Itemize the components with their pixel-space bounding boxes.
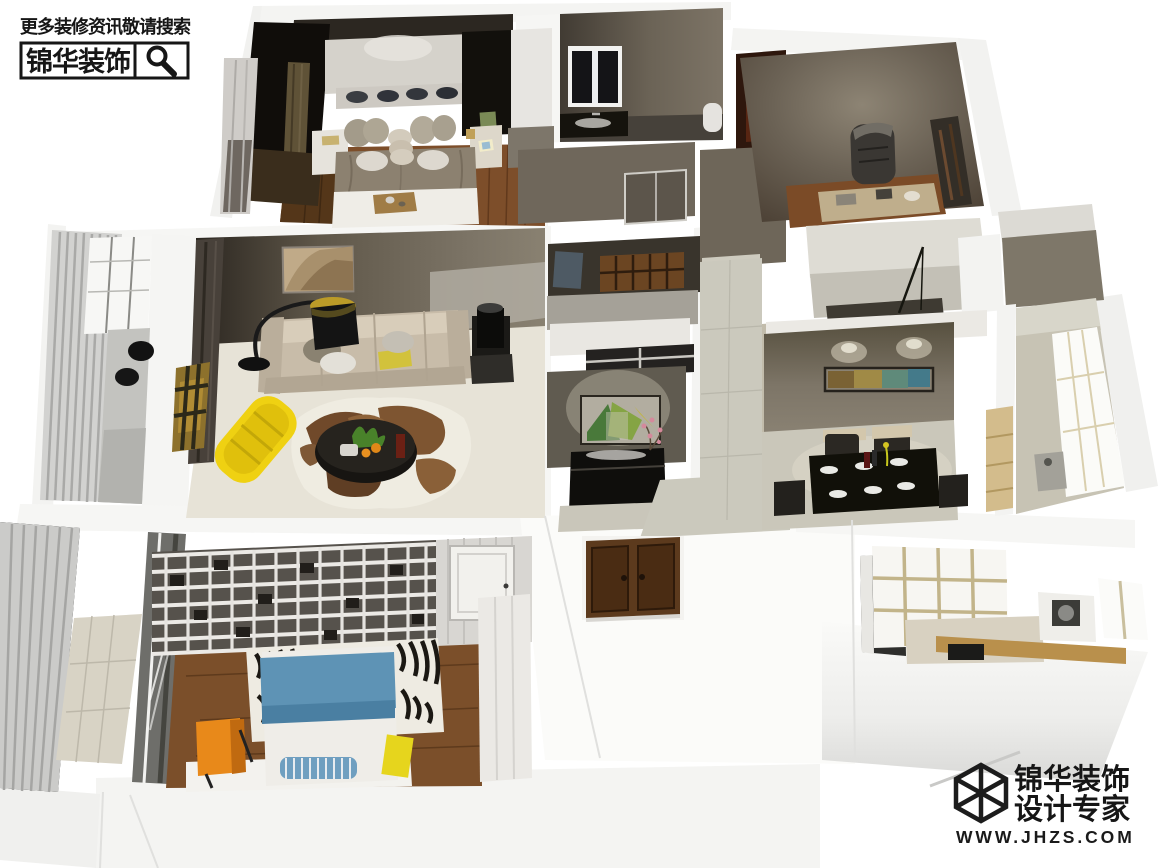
- svg-text:WWW.JHZS.COM: WWW.JHZS.COM: [956, 827, 1135, 847]
- svg-text:设计专家: 设计专家: [1014, 792, 1130, 826]
- svg-text:锦华装饰: 锦华装饰: [26, 46, 130, 77]
- svg-text:锦华装饰: 锦华装饰: [1014, 763, 1130, 796]
- svg-text:更多装修资讯敬请搜索: 更多装修资讯敬请搜索: [20, 16, 191, 37]
